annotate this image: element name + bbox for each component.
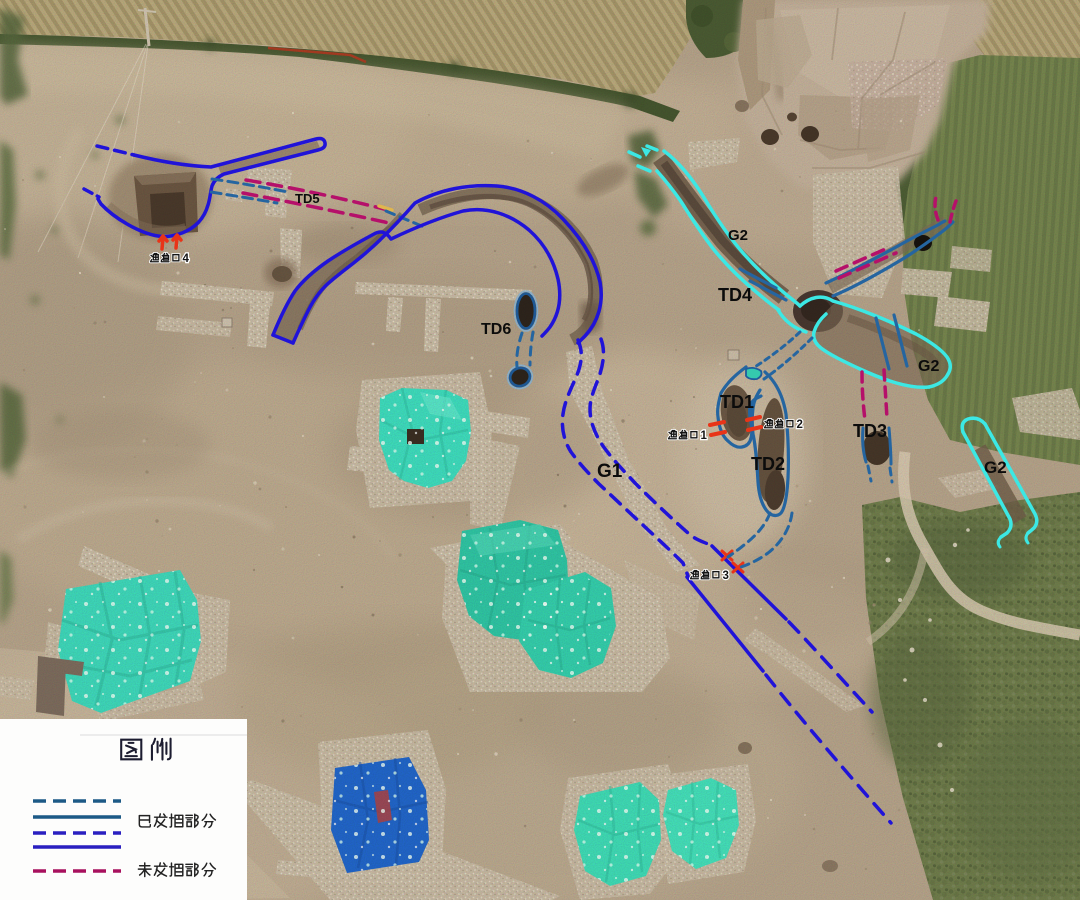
svg-text:2: 2 [797, 419, 803, 431]
svg-text:G1: G1 [597, 461, 623, 482]
svg-text:3: 3 [723, 570, 729, 582]
svg-text:TD1: TD1 [720, 392, 754, 412]
svg-text:TD2: TD2 [751, 454, 785, 474]
svg-text:TD4: TD4 [718, 285, 752, 305]
svg-text:TD6: TD6 [481, 321, 511, 338]
svg-text:1: 1 [701, 430, 708, 442]
svg-text:G2: G2 [918, 358, 939, 375]
svg-text:G2: G2 [728, 227, 748, 244]
svg-text:G2: G2 [984, 458, 1007, 477]
svg-text:TD5: TD5 [295, 191, 320, 206]
svg-text:TD3: TD3 [853, 421, 887, 441]
svg-text:4: 4 [183, 253, 190, 265]
